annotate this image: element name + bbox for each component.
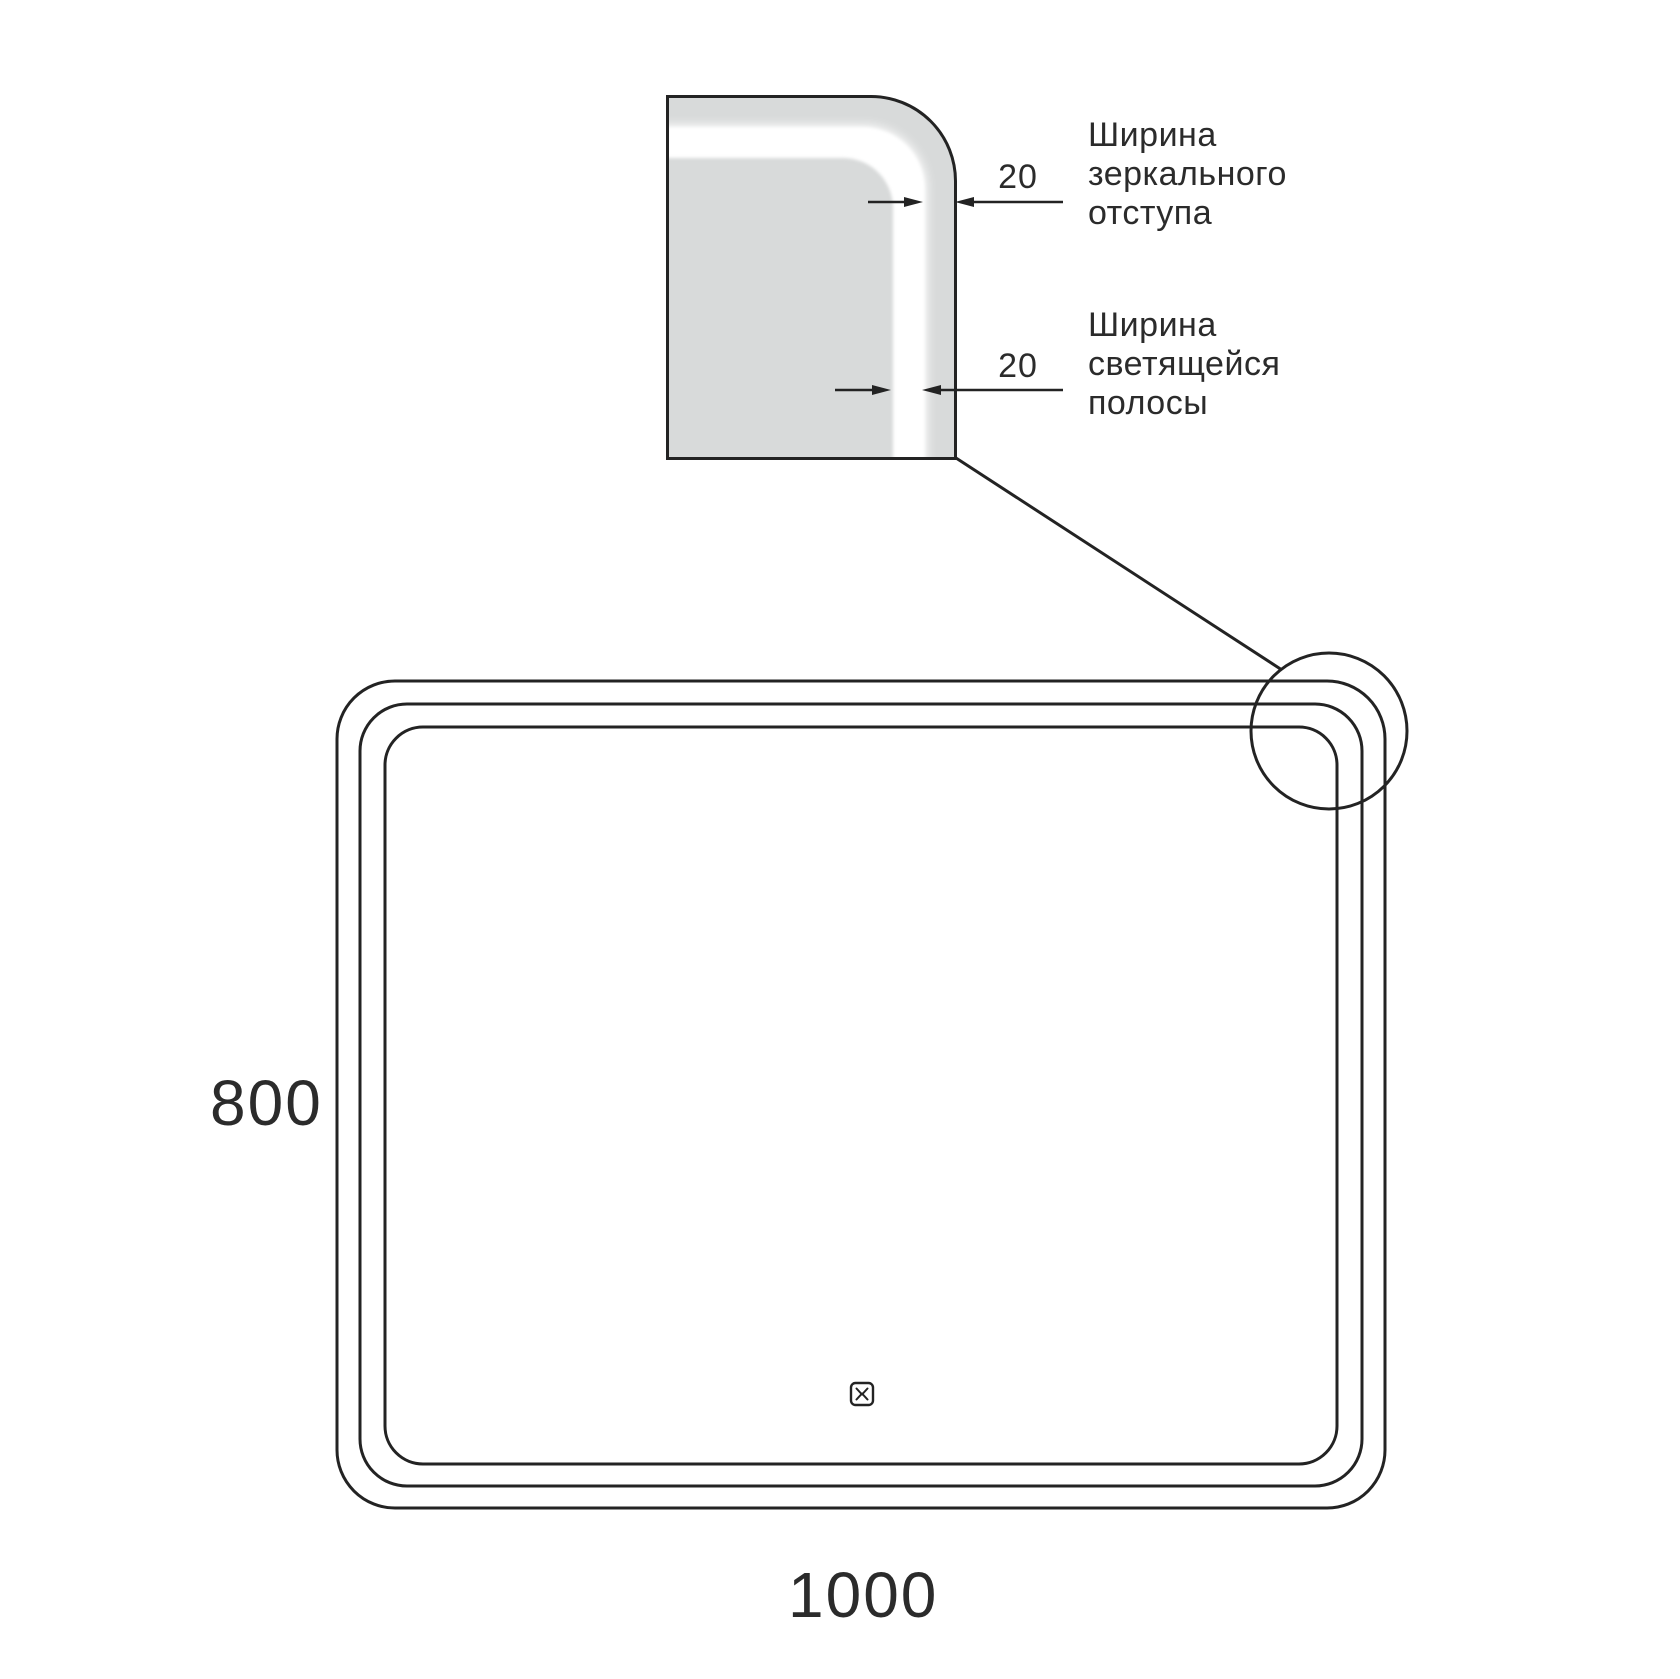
dim-offset-label-line2: зеркального xyxy=(1088,155,1287,194)
mirror-offset-line xyxy=(360,704,1362,1486)
mirror-dimension-diagram: 20 Ширина зеркального отступа 20 Ширина … xyxy=(0,0,1680,1679)
leader-line xyxy=(956,458,1282,670)
dim-strip-label-line3: полосы xyxy=(1088,384,1280,423)
dim-offset-value: 20 xyxy=(988,158,1048,197)
mirror-strip-line xyxy=(385,727,1337,1464)
dim-offset-label-line3: отступа xyxy=(1088,194,1287,233)
dim-arrow-offset xyxy=(868,197,1063,207)
dim-arrow-strip xyxy=(835,385,1063,395)
diagram-linework xyxy=(0,0,1680,1679)
touch-button-icon xyxy=(851,1383,873,1405)
dim-strip-label: Ширина светящейся полосы xyxy=(1088,306,1280,423)
mirror-width-label: 1000 xyxy=(788,1558,938,1632)
mirror-height-label: 800 xyxy=(210,1066,323,1140)
dim-offset-label: Ширина зеркального отступа xyxy=(1088,116,1287,233)
dim-offset-label-line1: Ширина xyxy=(1088,116,1287,155)
dim-strip-label-line1: Ширина xyxy=(1088,306,1280,345)
dim-strip-value: 20 xyxy=(988,347,1048,386)
dim-strip-label-line2: светящейся xyxy=(1088,345,1280,384)
